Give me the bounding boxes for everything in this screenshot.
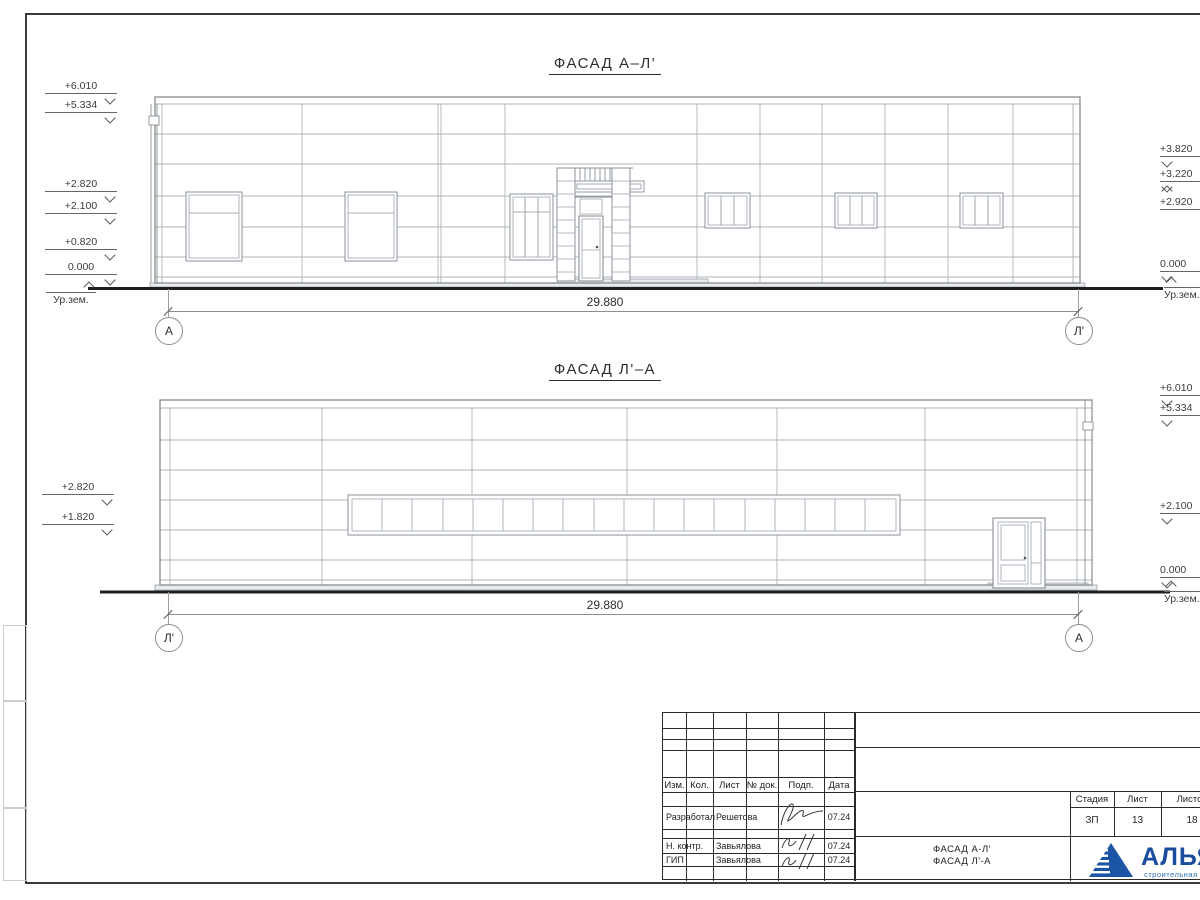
- row-date: 07.24: [824, 841, 854, 851]
- signature: [775, 795, 827, 833]
- building-outline: [160, 400, 1092, 585]
- sheets-label: Листов: [1161, 794, 1200, 805]
- elevation-mark: +3.220: [1160, 168, 1200, 182]
- elevation-mark: +2.820: [42, 481, 114, 495]
- dimension-line: [168, 614, 1078, 615]
- col-ndok: № док.: [746, 780, 778, 791]
- margin-stamp-box: [3, 807, 27, 881]
- row-name: Решетова: [716, 812, 757, 822]
- elevation-mark: +3.820: [1160, 143, 1200, 157]
- back-door: [993, 518, 1045, 588]
- elevation-mark: +1.820: [42, 511, 114, 525]
- margin-stamp-box: [3, 700, 27, 809]
- axis-bubble-l: Л': [1065, 317, 1093, 345]
- ground-level-mark: Ур.зем.: [1164, 591, 1200, 606]
- elevation-mark: +2.100: [1160, 500, 1200, 514]
- title-block: Изм. Кол. Лист № док. Подп. Дата Разрабо…: [662, 712, 1200, 880]
- facade-bottom-title: ФАСАД Л'–А: [549, 361, 661, 381]
- sheet-label: Лист: [1114, 794, 1161, 805]
- window: [186, 192, 242, 261]
- stage-label: Стадия: [1070, 794, 1114, 805]
- window: [345, 192, 397, 261]
- ground-level-mark: Ур.зем.: [46, 292, 96, 307]
- extension-line: [168, 592, 169, 624]
- facade-l-a-drawing: [95, 395, 1175, 625]
- axis-bubble-a: А: [1065, 624, 1093, 652]
- row-date: 07.24: [824, 812, 854, 822]
- entrance-door: [575, 197, 612, 281]
- plinth: [155, 583, 1097, 590]
- company-logo-icon: [1087, 841, 1135, 879]
- elevation-mark: +2.920: [1160, 196, 1200, 210]
- elevation-mark: +0.820: [45, 236, 117, 250]
- col-list: Лист: [713, 780, 746, 791]
- extension-line: [168, 289, 169, 317]
- downspout: [149, 104, 159, 283]
- row-name: Завьялова: [716, 841, 761, 851]
- col-kol: Кол.: [686, 780, 713, 791]
- elevation-mark: 0.000: [45, 261, 117, 275]
- dimension-line: [168, 311, 1078, 312]
- axis-bubble-a: А: [155, 317, 183, 345]
- doc-title-line1: ФАСАД А-Л': [854, 844, 1070, 855]
- ground-level-mark: Ур.зем.: [1164, 287, 1200, 302]
- row-role: ГИП: [666, 855, 684, 865]
- small-window: [835, 193, 877, 228]
- dimension-value: 29.880: [587, 295, 624, 309]
- entrance-side-window: [510, 194, 553, 260]
- company-subtitle: строительная компания: [1144, 870, 1200, 879]
- row-date: 07.24: [824, 855, 854, 865]
- elevation-mark: +5.334: [45, 99, 117, 113]
- col-podp: Подп.: [778, 780, 824, 791]
- elevation-mark: +2.100: [45, 200, 117, 214]
- drawing-sheet: ФАСАД А–Л': [0, 0, 1200, 900]
- signature: [779, 851, 825, 873]
- stage-value: ЗП: [1070, 815, 1114, 826]
- company-name: АЛЬЯНС: [1141, 843, 1200, 872]
- entrance-canopy: [574, 168, 644, 192]
- elevation-mark: +2.820: [45, 178, 117, 192]
- sheets-total: 18: [1161, 815, 1200, 826]
- row-name: Завьялова: [716, 855, 761, 865]
- small-window: [960, 193, 1003, 228]
- ribbon-window: [348, 495, 900, 535]
- dimension-value: 29.880: [587, 598, 624, 612]
- col-data: Дата: [824, 780, 854, 791]
- sheet-number: 13: [1114, 815, 1161, 826]
- row-role: Н. контр.: [666, 841, 703, 851]
- elevation-mark: +6.010: [45, 80, 117, 94]
- row-role: Разработал: [666, 812, 715, 822]
- axis-bubble-l: Л': [155, 624, 183, 652]
- facade-top-title: ФАСАД А–Л': [549, 55, 661, 75]
- small-window: [705, 193, 750, 228]
- elevation-mark: +6.010: [1160, 382, 1200, 396]
- col-izm: Изм.: [663, 780, 686, 791]
- elevation-mark: +5.334: [1160, 402, 1200, 416]
- facade-a-l-drawing: [88, 90, 1165, 295]
- doc-title-line2: ФАСАД Л'-А: [854, 856, 1070, 867]
- elevation-mark: 0.000: [1160, 564, 1200, 578]
- extension-line: [1078, 592, 1079, 624]
- margin-stamp-box: [3, 625, 27, 702]
- elevation-mark: 0.000: [1160, 258, 1200, 272]
- extension-line: [1078, 289, 1079, 317]
